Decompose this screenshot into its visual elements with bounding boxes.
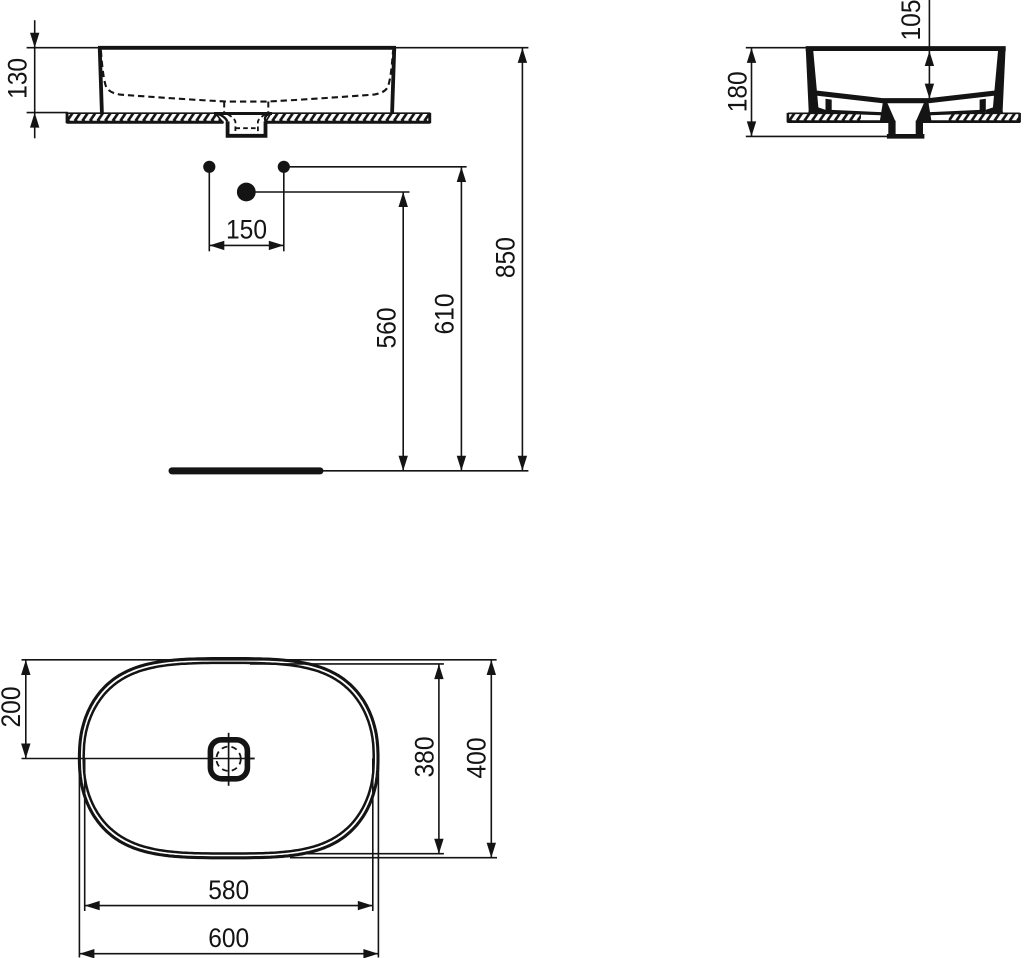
svg-text:600: 600 (208, 923, 249, 953)
svg-text:610: 610 (430, 294, 460, 335)
svg-text:400: 400 (461, 738, 491, 779)
svg-text:380: 380 (410, 737, 440, 778)
svg-text:560: 560 (372, 308, 402, 349)
svg-text:105: 105 (896, 0, 926, 41)
svg-text:150: 150 (226, 215, 267, 245)
svg-text:180: 180 (723, 71, 753, 112)
svg-text:580: 580 (208, 875, 249, 905)
svg-text:200: 200 (0, 687, 26, 728)
svg-text:850: 850 (491, 237, 521, 278)
svg-text:130: 130 (3, 58, 33, 99)
